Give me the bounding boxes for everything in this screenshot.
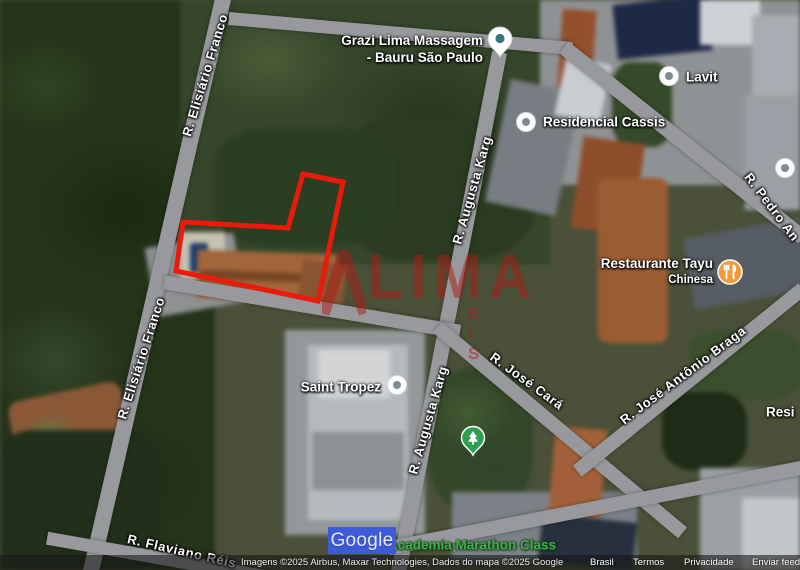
poi-label-line: Residencial Cassis: [543, 114, 665, 131]
poi-label-line: Grazi Lima Massagem: [341, 32, 483, 49]
attribution-link[interactable]: Privacidade: [684, 557, 734, 568]
google-logo-highlight[interactable]: Google: [328, 527, 396, 554]
poi-label-line: Saint Tropez: [301, 379, 381, 396]
park-poi-pin-icon[interactable]: [461, 426, 486, 457]
poi-label-line: Chinesa: [601, 272, 713, 289]
restaurante-tayu-label[interactable]: Restaurante TayuChinesa: [601, 255, 713, 289]
google-logo: Google: [330, 530, 393, 552]
academia-marathon-class-label[interactable]: Academia Marathon Class: [388, 537, 556, 554]
saint-tropez-label[interactable]: Saint Tropez: [301, 379, 381, 396]
poi-label-line: Lavit: [686, 69, 718, 86]
residencial-cassis-label[interactable]: Residencial Cassis: [543, 114, 665, 131]
poi-label-line: Resi: [766, 404, 795, 421]
lavit-pin-icon[interactable]: [659, 66, 680, 87]
poi-label-line: Academia Marathon Class: [388, 537, 556, 554]
attribution-link[interactable]: Enviar feed: [752, 557, 800, 568]
residencial-partial-label[interactable]: Resi: [766, 404, 795, 421]
saint-tropez-pin-icon[interactable]: [387, 375, 408, 396]
poi-label-line: - Bauru São Paulo: [341, 49, 483, 66]
attribution-link[interactable]: Brasil: [590, 557, 614, 568]
restaurante-tayu-pin-icon[interactable]: [717, 259, 744, 286]
attribution-bar: Imagens ©2025 Airbus, Maxar Technologies…: [0, 555, 800, 570]
grazi-lima-massagem-pin-icon[interactable]: [487, 26, 513, 58]
poi-label-line: Restaurante Tayu: [601, 255, 713, 272]
lavit-label[interactable]: Lavit: [686, 69, 718, 86]
grazi-lima-massagem-label[interactable]: Grazi Lima Massagem- Bauru São Paulo: [341, 32, 483, 66]
poi-layer: Grazi Lima Massagem- Bauru São PauloLavi…: [0, 0, 800, 570]
attribution-link[interactable]: Termos: [633, 557, 664, 568]
satellite-map[interactable]: LIMA E I S R. Elisiário FrancoR. Elisiár…: [0, 0, 800, 570]
residencial-cassis-pin-icon[interactable]: [516, 112, 537, 133]
poi-unlabeled-pin-icon[interactable]: [775, 158, 796, 179]
imagery-credits: Imagens ©2025 Airbus, Maxar Technologies…: [241, 557, 563, 568]
